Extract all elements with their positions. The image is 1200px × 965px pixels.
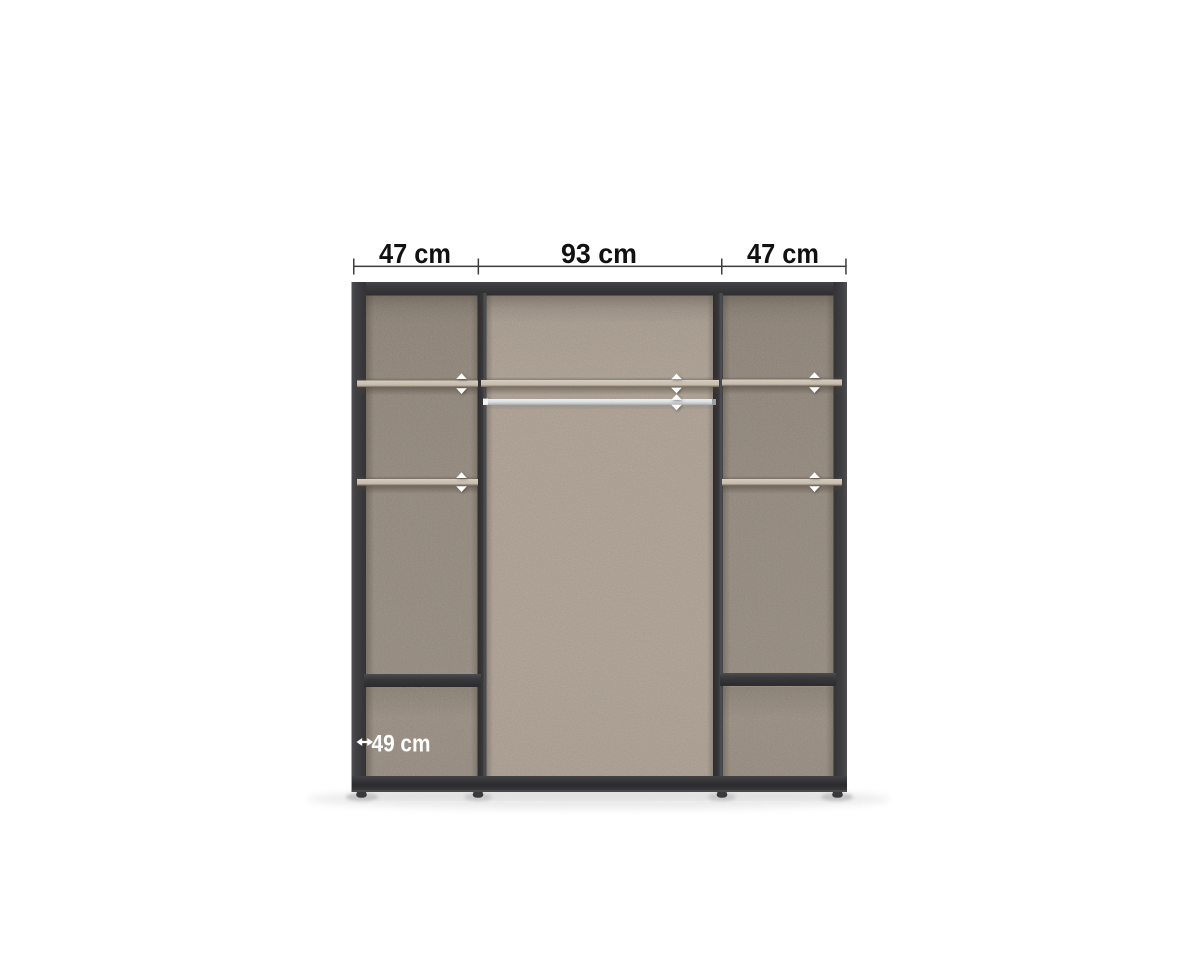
svg-text:93 cm: 93 cm — [561, 238, 637, 269]
svg-text:47 cm: 47 cm — [747, 238, 819, 269]
svg-text:49 cm: 49 cm — [372, 730, 431, 757]
svg-text:47 cm: 47 cm — [379, 238, 451, 269]
